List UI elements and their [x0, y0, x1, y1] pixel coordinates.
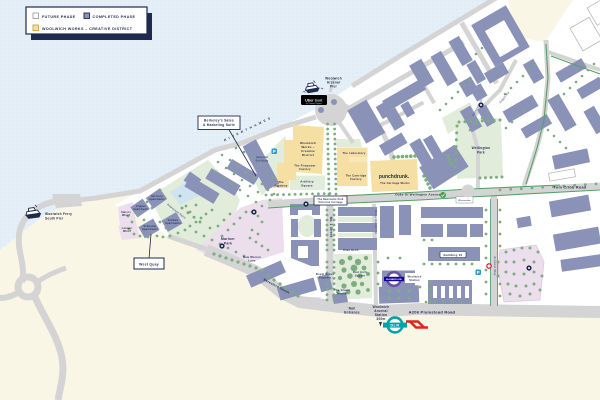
svg-text:by Thames Clippers: by Thames Clippers	[306, 103, 322, 105]
svg-text:Apartments: Apartments	[142, 228, 158, 231]
svg-text:P: P	[273, 149, 276, 154]
svg-text:The Grand: The Grand	[334, 288, 350, 292]
svg-text:FUTURE PHASE: FUTURE PHASE	[42, 15, 76, 19]
svg-text:West Quay: West Quay	[139, 263, 159, 267]
svg-text:Station: Station	[409, 278, 420, 282]
svg-text:The Cartridge: The Cartridge	[346, 174, 367, 178]
svg-text:Park: Park	[477, 151, 485, 155]
svg-text:boat: boat	[315, 98, 323, 102]
svg-text:Apartments: Apartments	[165, 222, 181, 225]
svg-text:Dial Arch: Dial Arch	[343, 248, 358, 252]
svg-text:Wharf: Wharf	[123, 230, 131, 233]
svg-text:WOOLWICH WORKS – CREATIVE DIST: WOOLWICH WORKS – CREATIVE DISTRICT	[42, 27, 133, 31]
svg-text:The Newcastle Club: The Newcastle Club	[317, 198, 344, 201]
svg-text:Academy: Academy	[274, 183, 288, 187]
svg-text:Wellington: Wellington	[472, 146, 491, 150]
svg-text:Riverside: Riverside	[458, 200, 471, 202]
svg-text:Lane: Lane	[248, 259, 256, 263]
svg-text:House: House	[337, 292, 347, 296]
svg-text:Woolwich: Woolwich	[407, 275, 421, 279]
svg-text:Dial Arch: Dial Arch	[353, 270, 367, 274]
svg-text:Apartments: Apartments	[149, 198, 165, 201]
svg-text:A206 Plumstead Road: A206 Plumstead Road	[409, 310, 456, 315]
svg-text:Woolwich Ferry: Woolwich Ferry	[45, 212, 72, 216]
svg-text:Factory: Factory	[299, 167, 311, 171]
svg-text:Building 10: Building 10	[444, 253, 463, 257]
svg-text:ELIZABETH LINE: ELIZABETH LINE	[386, 278, 402, 281]
svg-text:P: P	[477, 270, 480, 275]
svg-text:300m: 300m	[376, 317, 385, 321]
svg-text:Wharf: Wharf	[122, 214, 130, 217]
svg-text:& Marketing Suite: & Marketing Suite	[203, 123, 235, 127]
svg-text:Building: Building	[256, 159, 269, 163]
svg-text:The Firepower: The Firepower	[294, 164, 316, 168]
svg-text:COMPLETED PHASE: COMPLETED PHASE	[93, 15, 136, 19]
svg-text:South Pier: South Pier	[45, 217, 64, 221]
svg-text:Berkeley's Sales: Berkeley's Sales	[204, 118, 234, 122]
svg-text:The Laboratory: The Laboratory	[342, 151, 365, 155]
svg-text:DLR: DLR	[391, 324, 400, 328]
svg-text:No. 1 Street: No. 1 Street	[329, 217, 333, 238]
svg-text:District: District	[302, 153, 314, 157]
svg-text:Duke Of Wellington Avenue: Duke Of Wellington Avenue	[395, 192, 440, 196]
svg-text:Park: Park	[224, 242, 232, 246]
svg-text:Major Draper St: Major Draper St	[374, 210, 378, 235]
svg-text:Arsenal Way: Arsenal Way	[493, 256, 497, 276]
svg-text:Foundry: Foundry	[319, 276, 332, 280]
svg-text:Tom Cribb Road: Tom Cribb Road	[554, 186, 587, 190]
svg-text:punchdrunk.: punchdrunk.	[379, 174, 410, 180]
svg-text:Victorian Carriage: Victorian Carriage	[318, 201, 343, 204]
svg-text:Entrance: Entrance	[344, 311, 360, 315]
svg-text:Apartments: Apartments	[133, 208, 149, 211]
svg-text:New Warren: New Warren	[243, 255, 261, 259]
svg-text:Mariner: Mariner	[221, 237, 235, 241]
svg-text:Square: Square	[301, 183, 313, 187]
svg-text:The: The	[278, 180, 284, 184]
svg-text:The Carriage Works: The Carriage Works	[380, 181, 410, 185]
svg-text:Royal Brass: Royal Brass	[316, 272, 335, 276]
svg-text:Uber: Uber	[305, 98, 314, 102]
svg-text:Imperial: Imperial	[256, 155, 268, 159]
svg-text:Square: Square	[355, 274, 366, 278]
svg-text:Pier: Pier	[330, 85, 338, 89]
svg-text:Factory: Factory	[350, 177, 362, 181]
